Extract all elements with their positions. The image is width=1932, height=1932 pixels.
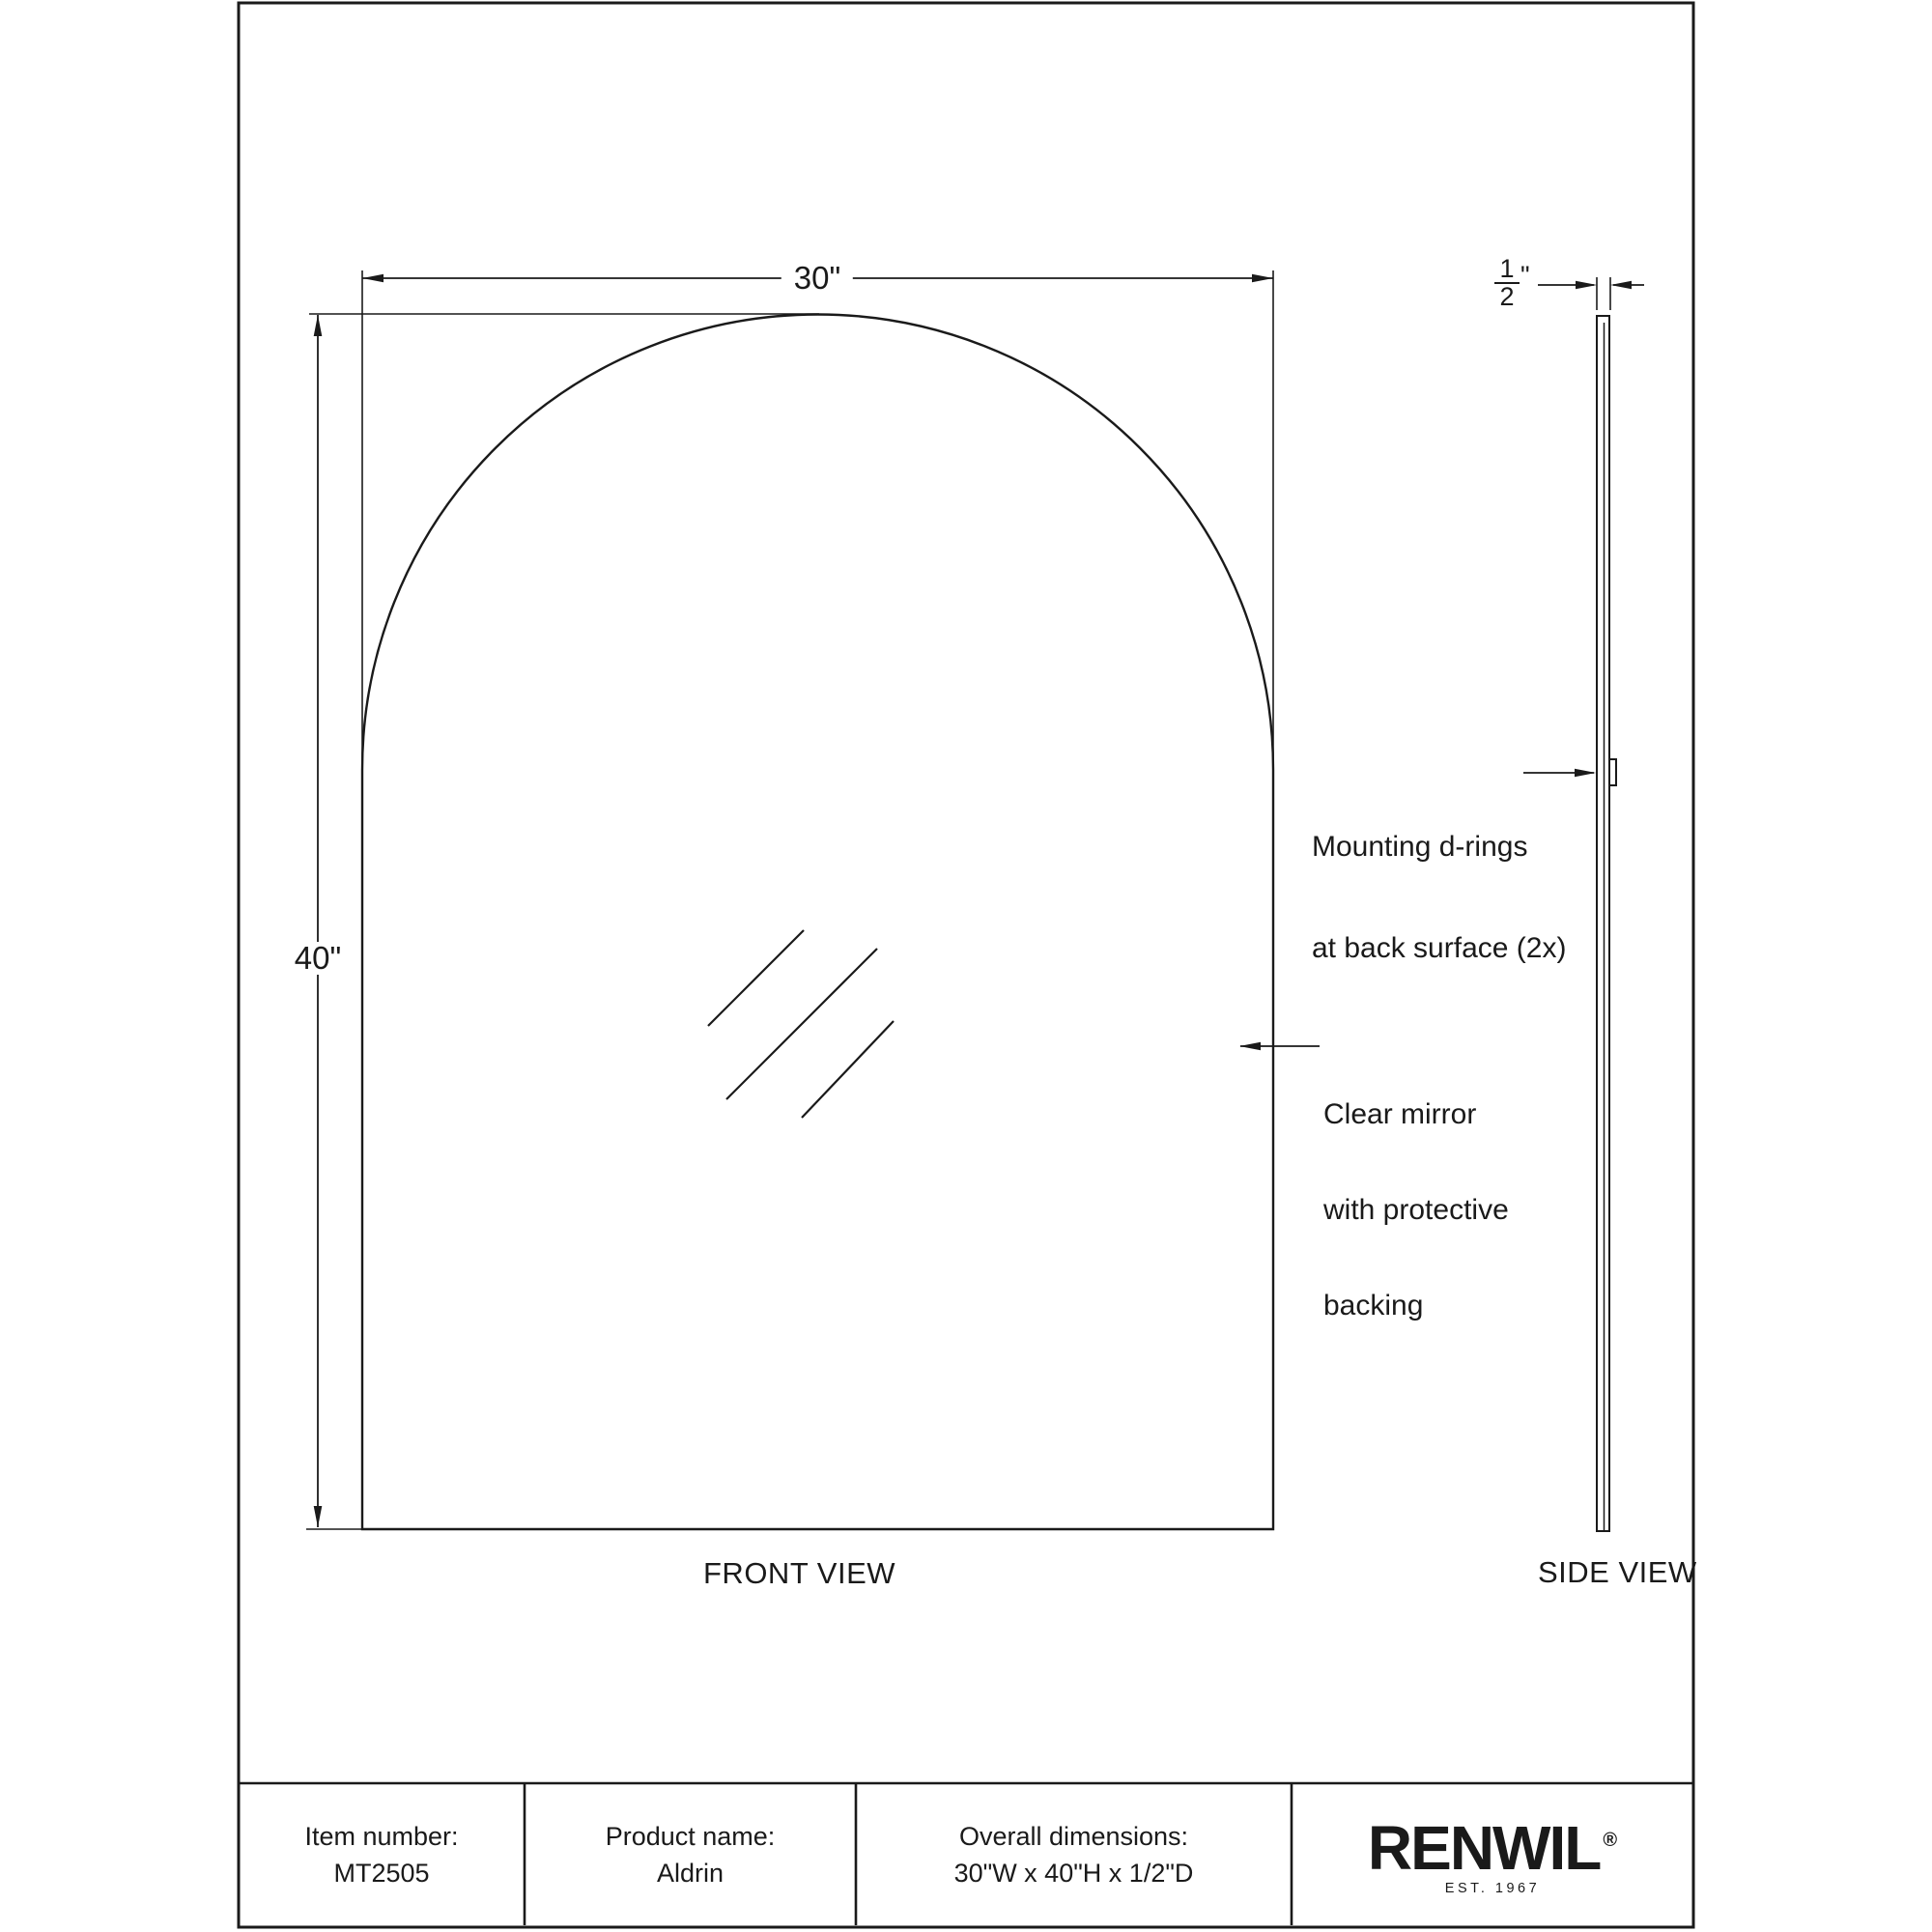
arrowhead-leader-mounting <box>1575 769 1596 778</box>
depth-fraction-numerator: 1 <box>1493 257 1520 281</box>
d-ring <box>1609 759 1616 785</box>
title-block-brand-cell: RENWIL® EST. 1967 <box>1292 1783 1693 1925</box>
brand-wordmark: RENWIL® <box>1368 1813 1617 1875</box>
mirror-annotation-line3: backing <box>1323 1290 1509 1321</box>
title-block-dimensions-cell: Overall dimensions: 30"W x 40"H x 1/2"D <box>856 1783 1292 1925</box>
depth-dimension-unit: " <box>1520 261 1530 291</box>
front-view-label: FRONT VIEW <box>703 1556 895 1591</box>
mirror-annotation-line1: Clear mirror <box>1323 1098 1509 1130</box>
brand-established-text: EST. 1967 <box>1445 1881 1540 1896</box>
mirror-side-outline <box>1597 316 1609 1531</box>
arrowhead-width-right <box>1252 274 1273 283</box>
product-name-value: Aldrin <box>657 1855 724 1891</box>
mirror-annotation: Clear mirror with protective backing <box>1323 1035 1509 1385</box>
item-number-label: Item number: <box>304 1818 458 1855</box>
depth-fraction-denominator: 2 <box>1493 285 1520 309</box>
item-number-value: MT2505 <box>333 1855 429 1891</box>
arrowhead-height-top <box>314 315 323 336</box>
overall-dimensions-value: 30"W x 40"H x 1/2"D <box>954 1855 1194 1891</box>
width-dimension-text: 30" <box>781 262 853 295</box>
arrowhead-height-bottom <box>314 1506 323 1527</box>
brand-logo: RENWIL® EST. 1967 <box>1368 1813 1617 1896</box>
height-dimension-text: 40" <box>282 942 354 975</box>
arrowhead-depth-left <box>1576 281 1597 290</box>
title-block-product-name-cell: Product name: Aldrin <box>525 1783 856 1925</box>
mounting-annotation-line1: Mounting d-rings <box>1312 830 1566 864</box>
mirror-annotation-line2: with protective <box>1323 1194 1509 1226</box>
brand-name-text: RENWIL <box>1368 1813 1600 1883</box>
product-name-label: Product name: <box>606 1818 776 1855</box>
registered-trademark-icon: ® <box>1603 1830 1617 1851</box>
title-block-item-number-cell: Item number: MT2505 <box>239 1783 525 1925</box>
mounting-annotation: Mounting d-rings at back surface (2x) <box>1312 762 1566 1033</box>
side-view-label: SIDE VIEW <box>1538 1555 1697 1590</box>
depth-dimension-fraction: 1 2 <box>1493 257 1520 309</box>
mirror-front-outline <box>362 315 1273 1530</box>
mounting-annotation-line2: at back surface (2x) <box>1312 931 1566 965</box>
arrowhead-width-left <box>362 274 384 283</box>
spec-sheet: 30" 40" 1 2 " Mounting d-rings at back s… <box>0 0 1932 1932</box>
arrowhead-depth-right <box>1610 281 1632 290</box>
overall-dimensions-label: Overall dimensions: <box>959 1818 1188 1855</box>
